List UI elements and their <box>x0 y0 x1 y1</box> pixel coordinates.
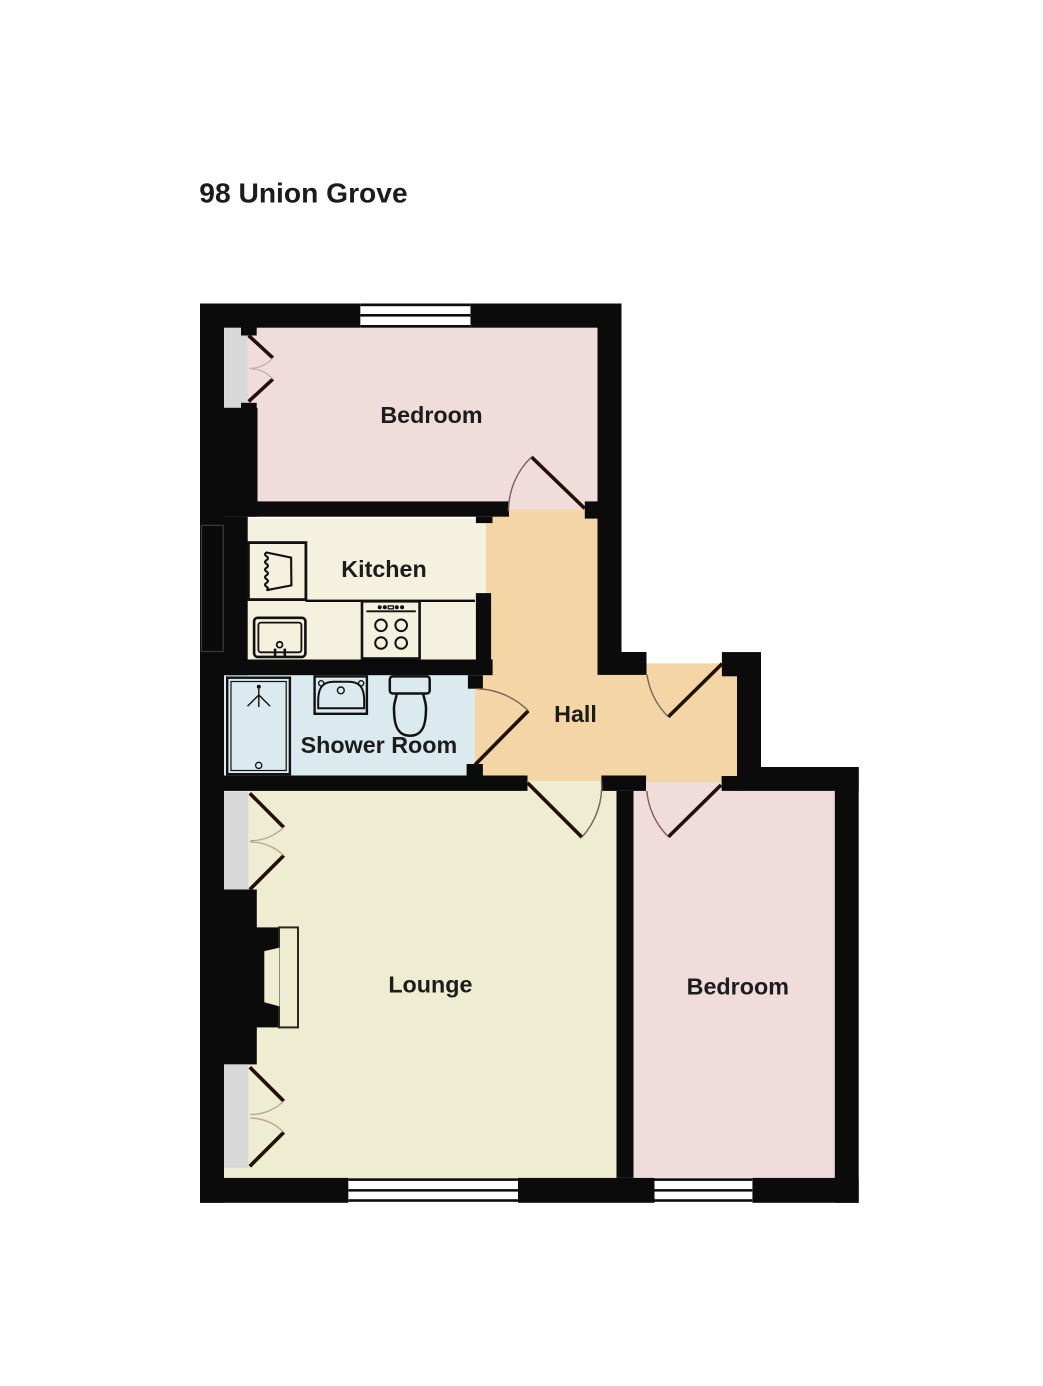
svg-text:Bedroom: Bedroom <box>380 402 482 428</box>
svg-text:98 Union Grove: 98 Union Grove <box>199 177 407 209</box>
svg-text:Lounge: Lounge <box>388 971 472 997</box>
svg-text:Hall: Hall <box>554 701 597 727</box>
svg-text:Bedroom: Bedroom <box>687 974 789 1000</box>
svg-text:Kitchen: Kitchen <box>341 556 426 582</box>
svg-text:Shower Room: Shower Room <box>301 732 458 758</box>
